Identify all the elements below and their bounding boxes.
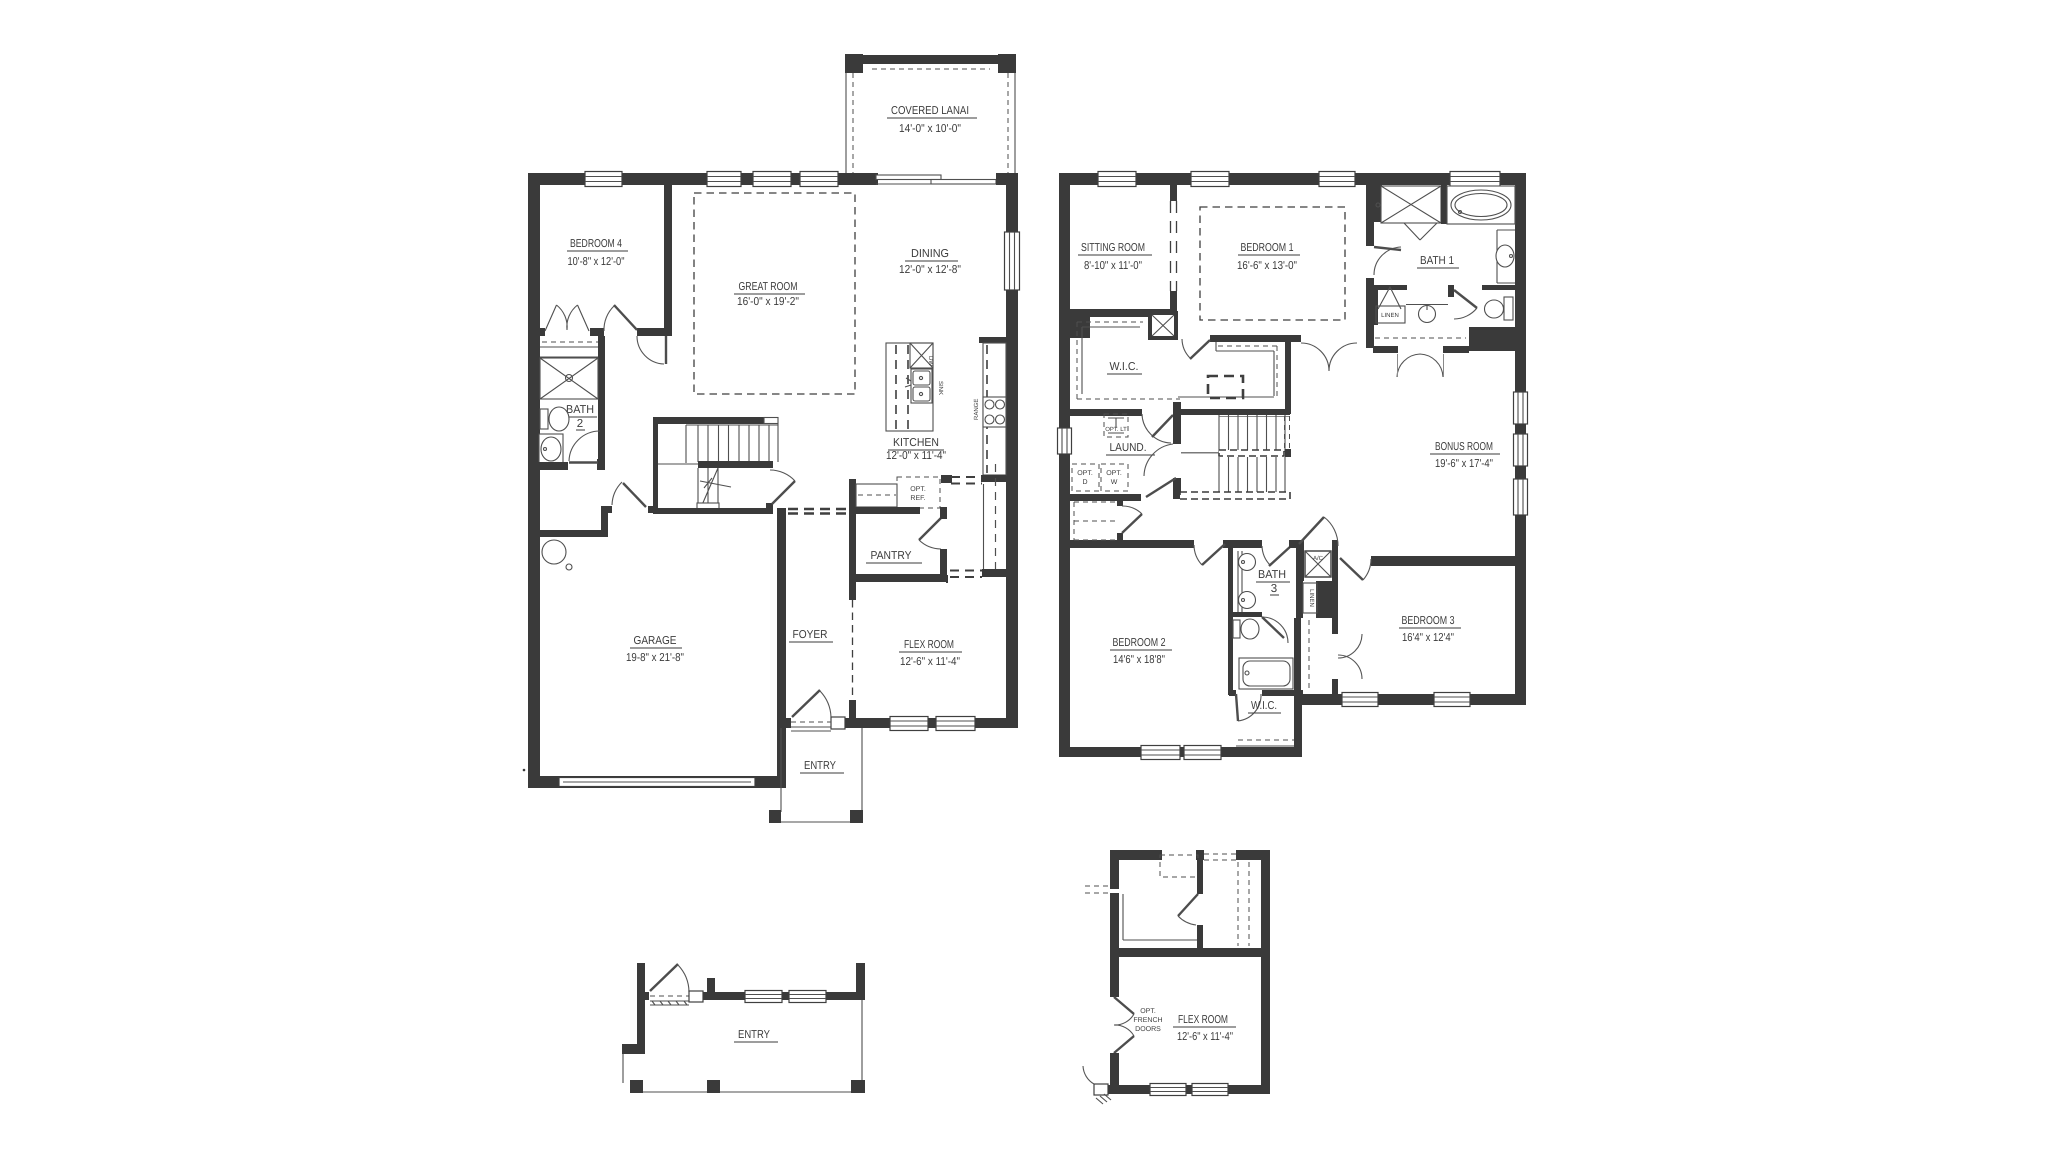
svg-text:FLEX ROOM: FLEX ROOM (904, 639, 954, 651)
svg-text:W.I.C.: W.I.C. (1110, 361, 1139, 373)
svg-text:W: W (1111, 479, 1118, 486)
svg-text:19-8" x 21'-8": 19-8" x 21'-8" (626, 652, 684, 664)
svg-text:16'-0" x 19'-2": 16'-0" x 19'-2" (737, 296, 799, 308)
svg-text:BATH 1: BATH 1 (1420, 255, 1454, 267)
svg-text:OPT. LT: OPT. LT (1105, 426, 1127, 433)
svg-text:12'-0" x 12'-8": 12'-0" x 12'-8" (899, 264, 961, 276)
svg-text:2: 2 (577, 418, 583, 430)
svg-text:DW: DW (927, 356, 934, 366)
svg-text:OPT.: OPT. (910, 486, 926, 493)
svg-text:DINING: DINING (911, 248, 949, 260)
svg-text:BEDROOM 2: BEDROOM 2 (1113, 637, 1166, 649)
svg-text:BATH: BATH (566, 404, 594, 416)
svg-text:12'-6" x 11'-4": 12'-6" x 11'-4" (900, 656, 960, 668)
svg-text:LAUND.: LAUND. (1110, 442, 1147, 454)
svg-text:OPT.: OPT. (1077, 470, 1093, 477)
svg-text:16'4" x 12'4": 16'4" x 12'4" (1402, 632, 1454, 644)
svg-text:W.I.C.: W.I.C. (1251, 700, 1277, 712)
svg-text:BEDROOM 1: BEDROOM 1 (1241, 242, 1294, 254)
svg-text:FLEX ROOM: FLEX ROOM (1178, 1014, 1228, 1026)
svg-text:19'-6" x 17'-4": 19'-6" x 17'-4" (1435, 458, 1493, 470)
svg-text:REF.: REF. (910, 495, 925, 502)
svg-text:D: D (1082, 479, 1087, 486)
svg-text:LINEN: LINEN (1381, 312, 1399, 319)
svg-text:14'-0" x 10'-0": 14'-0" x 10'-0" (899, 123, 961, 135)
svg-text:BEDROOM 3: BEDROOM 3 (1402, 615, 1455, 627)
svg-text:ENTRY: ENTRY (804, 760, 836, 772)
svg-text:COVERED LANAI: COVERED LANAI (891, 105, 969, 117)
svg-text:12'-0" x 11'-4": 12'-0" x 11'-4" (886, 450, 946, 462)
svg-text:OPT.: OPT. (1140, 1008, 1156, 1015)
svg-text:BONUS ROOM: BONUS ROOM (1435, 441, 1493, 453)
svg-text:FOYER: FOYER (793, 629, 828, 641)
svg-text:BEDROOM 4: BEDROOM 4 (570, 238, 622, 250)
svg-text:LINEN: LINEN (1308, 589, 1315, 607)
svg-text:10'-8" x 12'-0": 10'-8" x 12'-0" (568, 256, 625, 268)
svg-text:ENTRY: ENTRY (738, 1029, 770, 1041)
svg-text:BATH: BATH (1258, 569, 1286, 581)
svg-text:SINK: SINK (937, 381, 944, 395)
svg-text:KITCHEN: KITCHEN (893, 437, 939, 449)
svg-text:14'6" x 18'8": 14'6" x 18'8" (1113, 654, 1165, 666)
svg-text:A/C: A/C (1313, 555, 1324, 562)
svg-text:OPT.: OPT. (1106, 470, 1122, 477)
svg-text:GARAGE: GARAGE (634, 635, 677, 647)
svg-text:PANTRY: PANTRY (871, 550, 912, 562)
svg-text:DOORS: DOORS (1135, 1026, 1161, 1033)
svg-text:12'-6" x 11'-4": 12'-6" x 11'-4" (1177, 1031, 1233, 1043)
svg-text:3: 3 (1271, 583, 1277, 595)
svg-text:16'-6" x 13'-0": 16'-6" x 13'-0" (1237, 260, 1297, 272)
svg-text:RANGE: RANGE (973, 399, 980, 420)
svg-text:8'-10" x 11'-0": 8'-10" x 11'-0" (1084, 260, 1142, 272)
svg-text:SITTING ROOM: SITTING ROOM (1081, 242, 1145, 254)
svg-text:FRENCH: FRENCH (1133, 1017, 1162, 1024)
svg-text:GREAT ROOM: GREAT ROOM (739, 281, 798, 293)
